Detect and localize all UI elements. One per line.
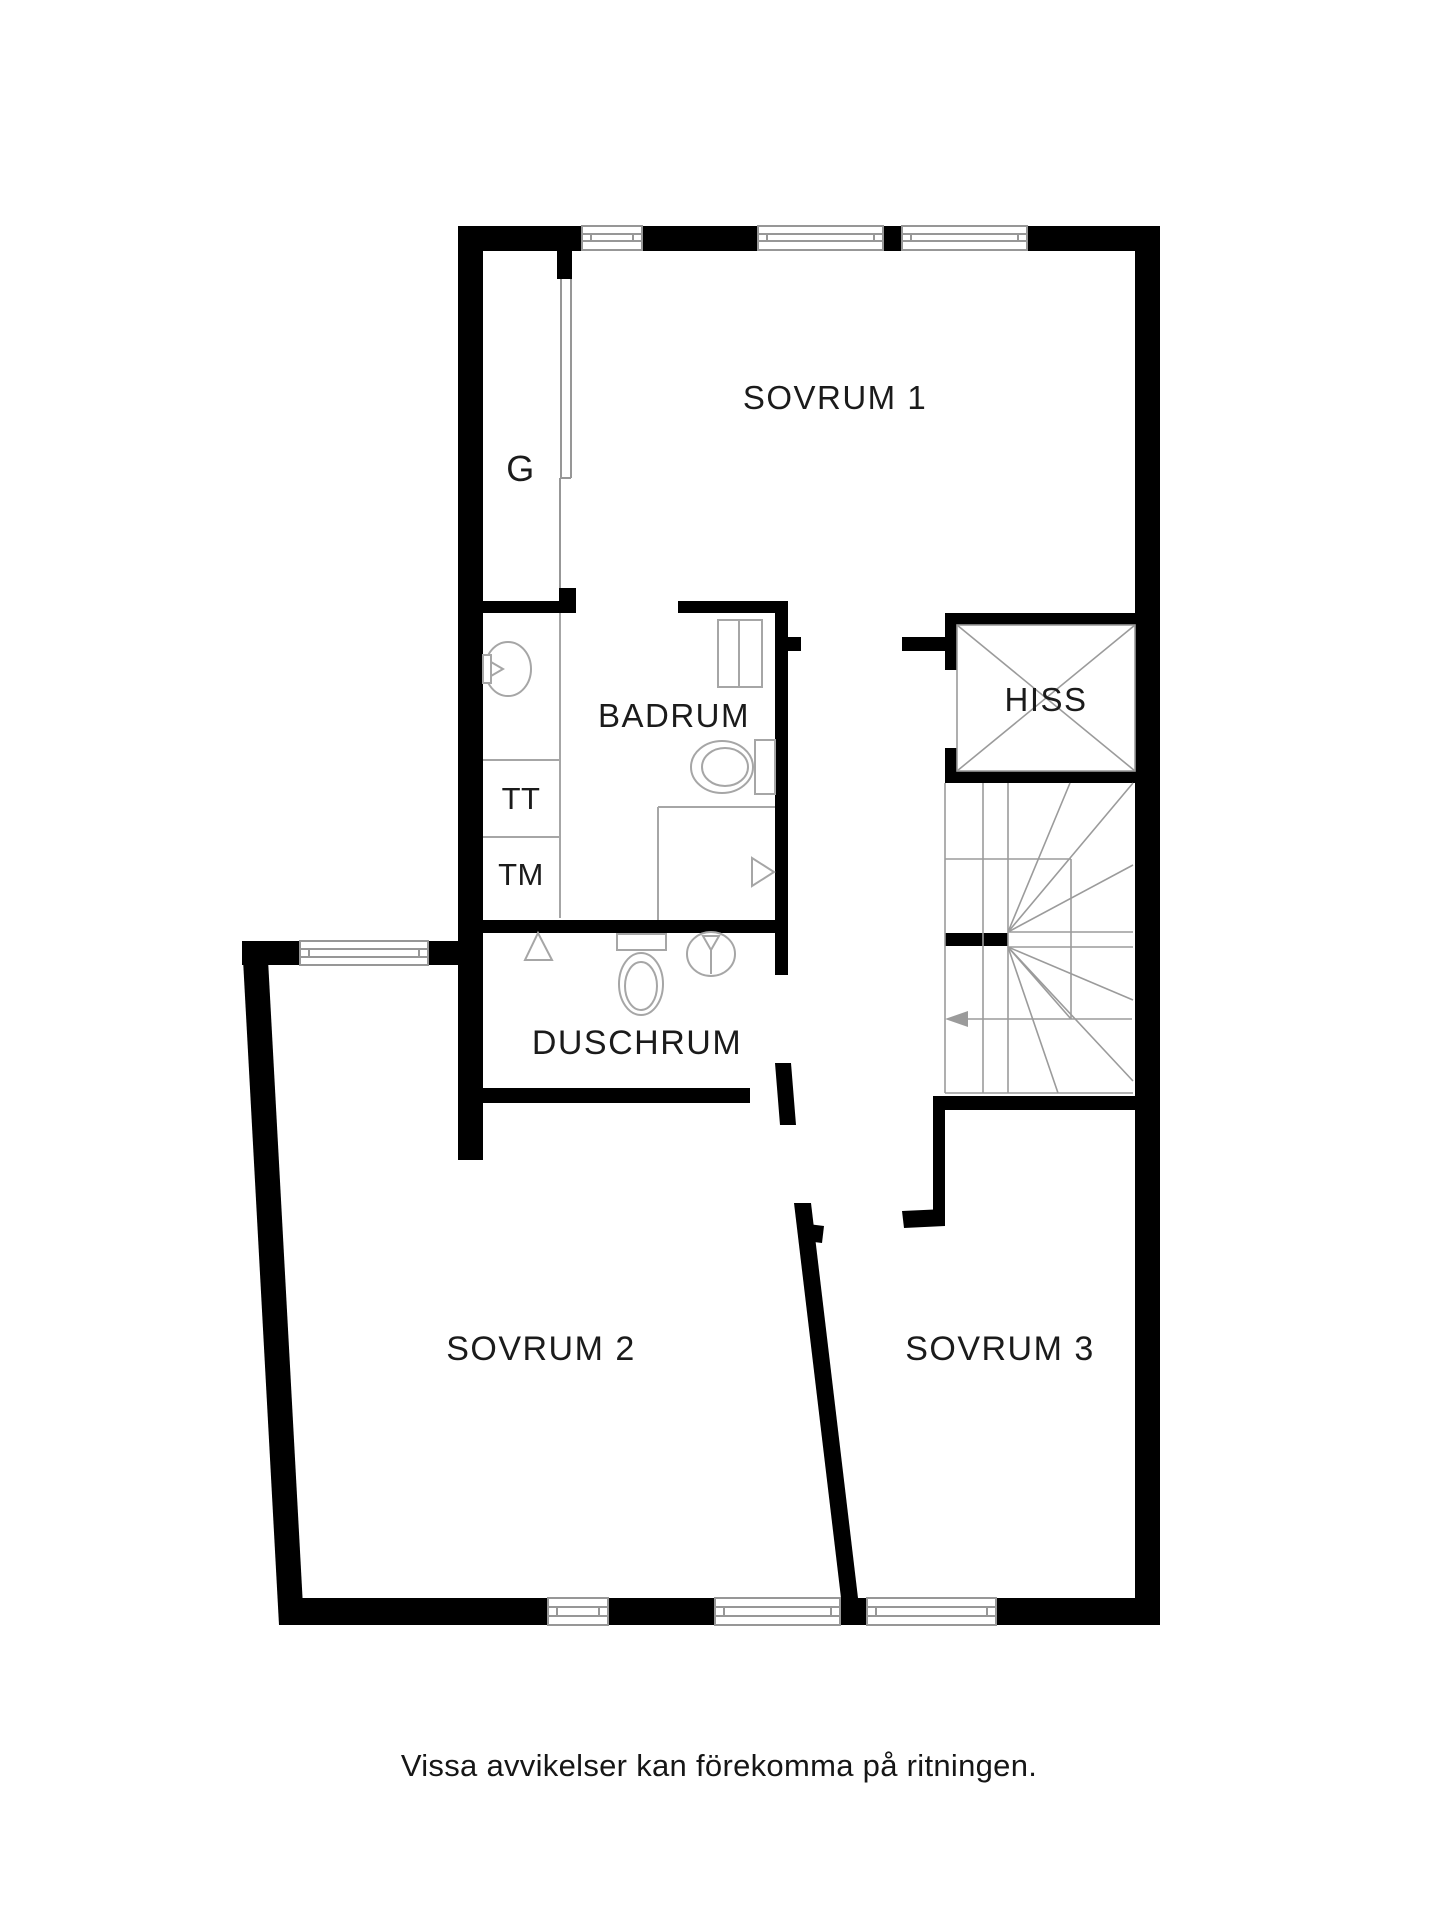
sink-icon [483, 642, 531, 696]
floor-plan-canvas: SOVRUM 1 G BADRUM HISS TT TM DUSCHRUM SO… [0, 0, 1440, 1920]
wall-segment [483, 1088, 750, 1103]
room-label-closet: G [506, 448, 536, 489]
cabinet-icon [718, 620, 762, 687]
wall-segment [840, 1598, 867, 1625]
wall-segment [902, 1209, 945, 1228]
wall-segment [458, 226, 483, 1160]
disclaimer-caption: Vissa avvikelser kan förekomma på ritnin… [401, 1748, 1037, 1783]
wall-segment [483, 920, 777, 933]
room-label-sovrum3: SOVRUM 3 [905, 1330, 1095, 1368]
duschrum-fixtures [525, 932, 735, 1015]
label-towel-dryer: TT [502, 781, 541, 816]
wall-segment [883, 226, 902, 251]
wall-segment [242, 941, 304, 1625]
toilet-icon [691, 740, 775, 794]
wall-segment [280, 1598, 548, 1625]
room-label-sovrum2: SOVRUM 2 [446, 1330, 636, 1368]
label-washing-machine: TM [498, 857, 544, 892]
walls [242, 226, 1160, 1625]
window [548, 1598, 608, 1625]
floor-plan-svg: SOVRUM 1 G BADRUM HISS TT TM DUSCHRUM SO… [0, 0, 1440, 1920]
wall-segment [945, 771, 1135, 783]
wall-segment [996, 1598, 1160, 1625]
wall-segment [775, 1063, 796, 1125]
wall-segment [788, 637, 801, 651]
wall-segment [642, 226, 758, 251]
wall-segment [1135, 226, 1160, 1625]
wall-segment [945, 933, 1008, 946]
room-label-hiss: HISS [1004, 681, 1087, 718]
wall-segment [806, 1224, 824, 1243]
window [902, 226, 1027, 250]
room-label-badrum: BADRUM [598, 697, 750, 734]
wall-segment [945, 613, 957, 670]
toilet-icon [617, 934, 666, 1015]
closet-partition [560, 279, 571, 588]
room-label-sovrum1: SOVRUM 1 [743, 379, 927, 416]
floor-drain-icon [525, 933, 552, 960]
window [758, 226, 883, 250]
wall-segment [775, 601, 788, 975]
room-label-duschrum: DUSCHRUM [532, 1024, 742, 1062]
wall-segment [794, 1203, 858, 1598]
wall-segment [678, 601, 788, 613]
shower-icon [658, 807, 775, 920]
stair-direction-arrow-icon [945, 1011, 968, 1027]
window [582, 226, 642, 250]
window [715, 1598, 840, 1625]
labels: SOVRUM 1 G BADRUM HISS TT TM DUSCHRUM SO… [401, 379, 1095, 1783]
window [300, 941, 428, 965]
wall-segment [902, 637, 945, 651]
wall-segment [945, 613, 1135, 625]
wall-segment [428, 941, 483, 965]
wall-segment [933, 1096, 1158, 1110]
wall-segment [559, 588, 576, 603]
window [867, 1598, 996, 1625]
wall-segment [557, 251, 572, 279]
sink-icon [687, 932, 735, 976]
wall-segment [933, 1096, 945, 1223]
wall-segment [483, 601, 576, 613]
wall-segment [608, 1598, 715, 1625]
